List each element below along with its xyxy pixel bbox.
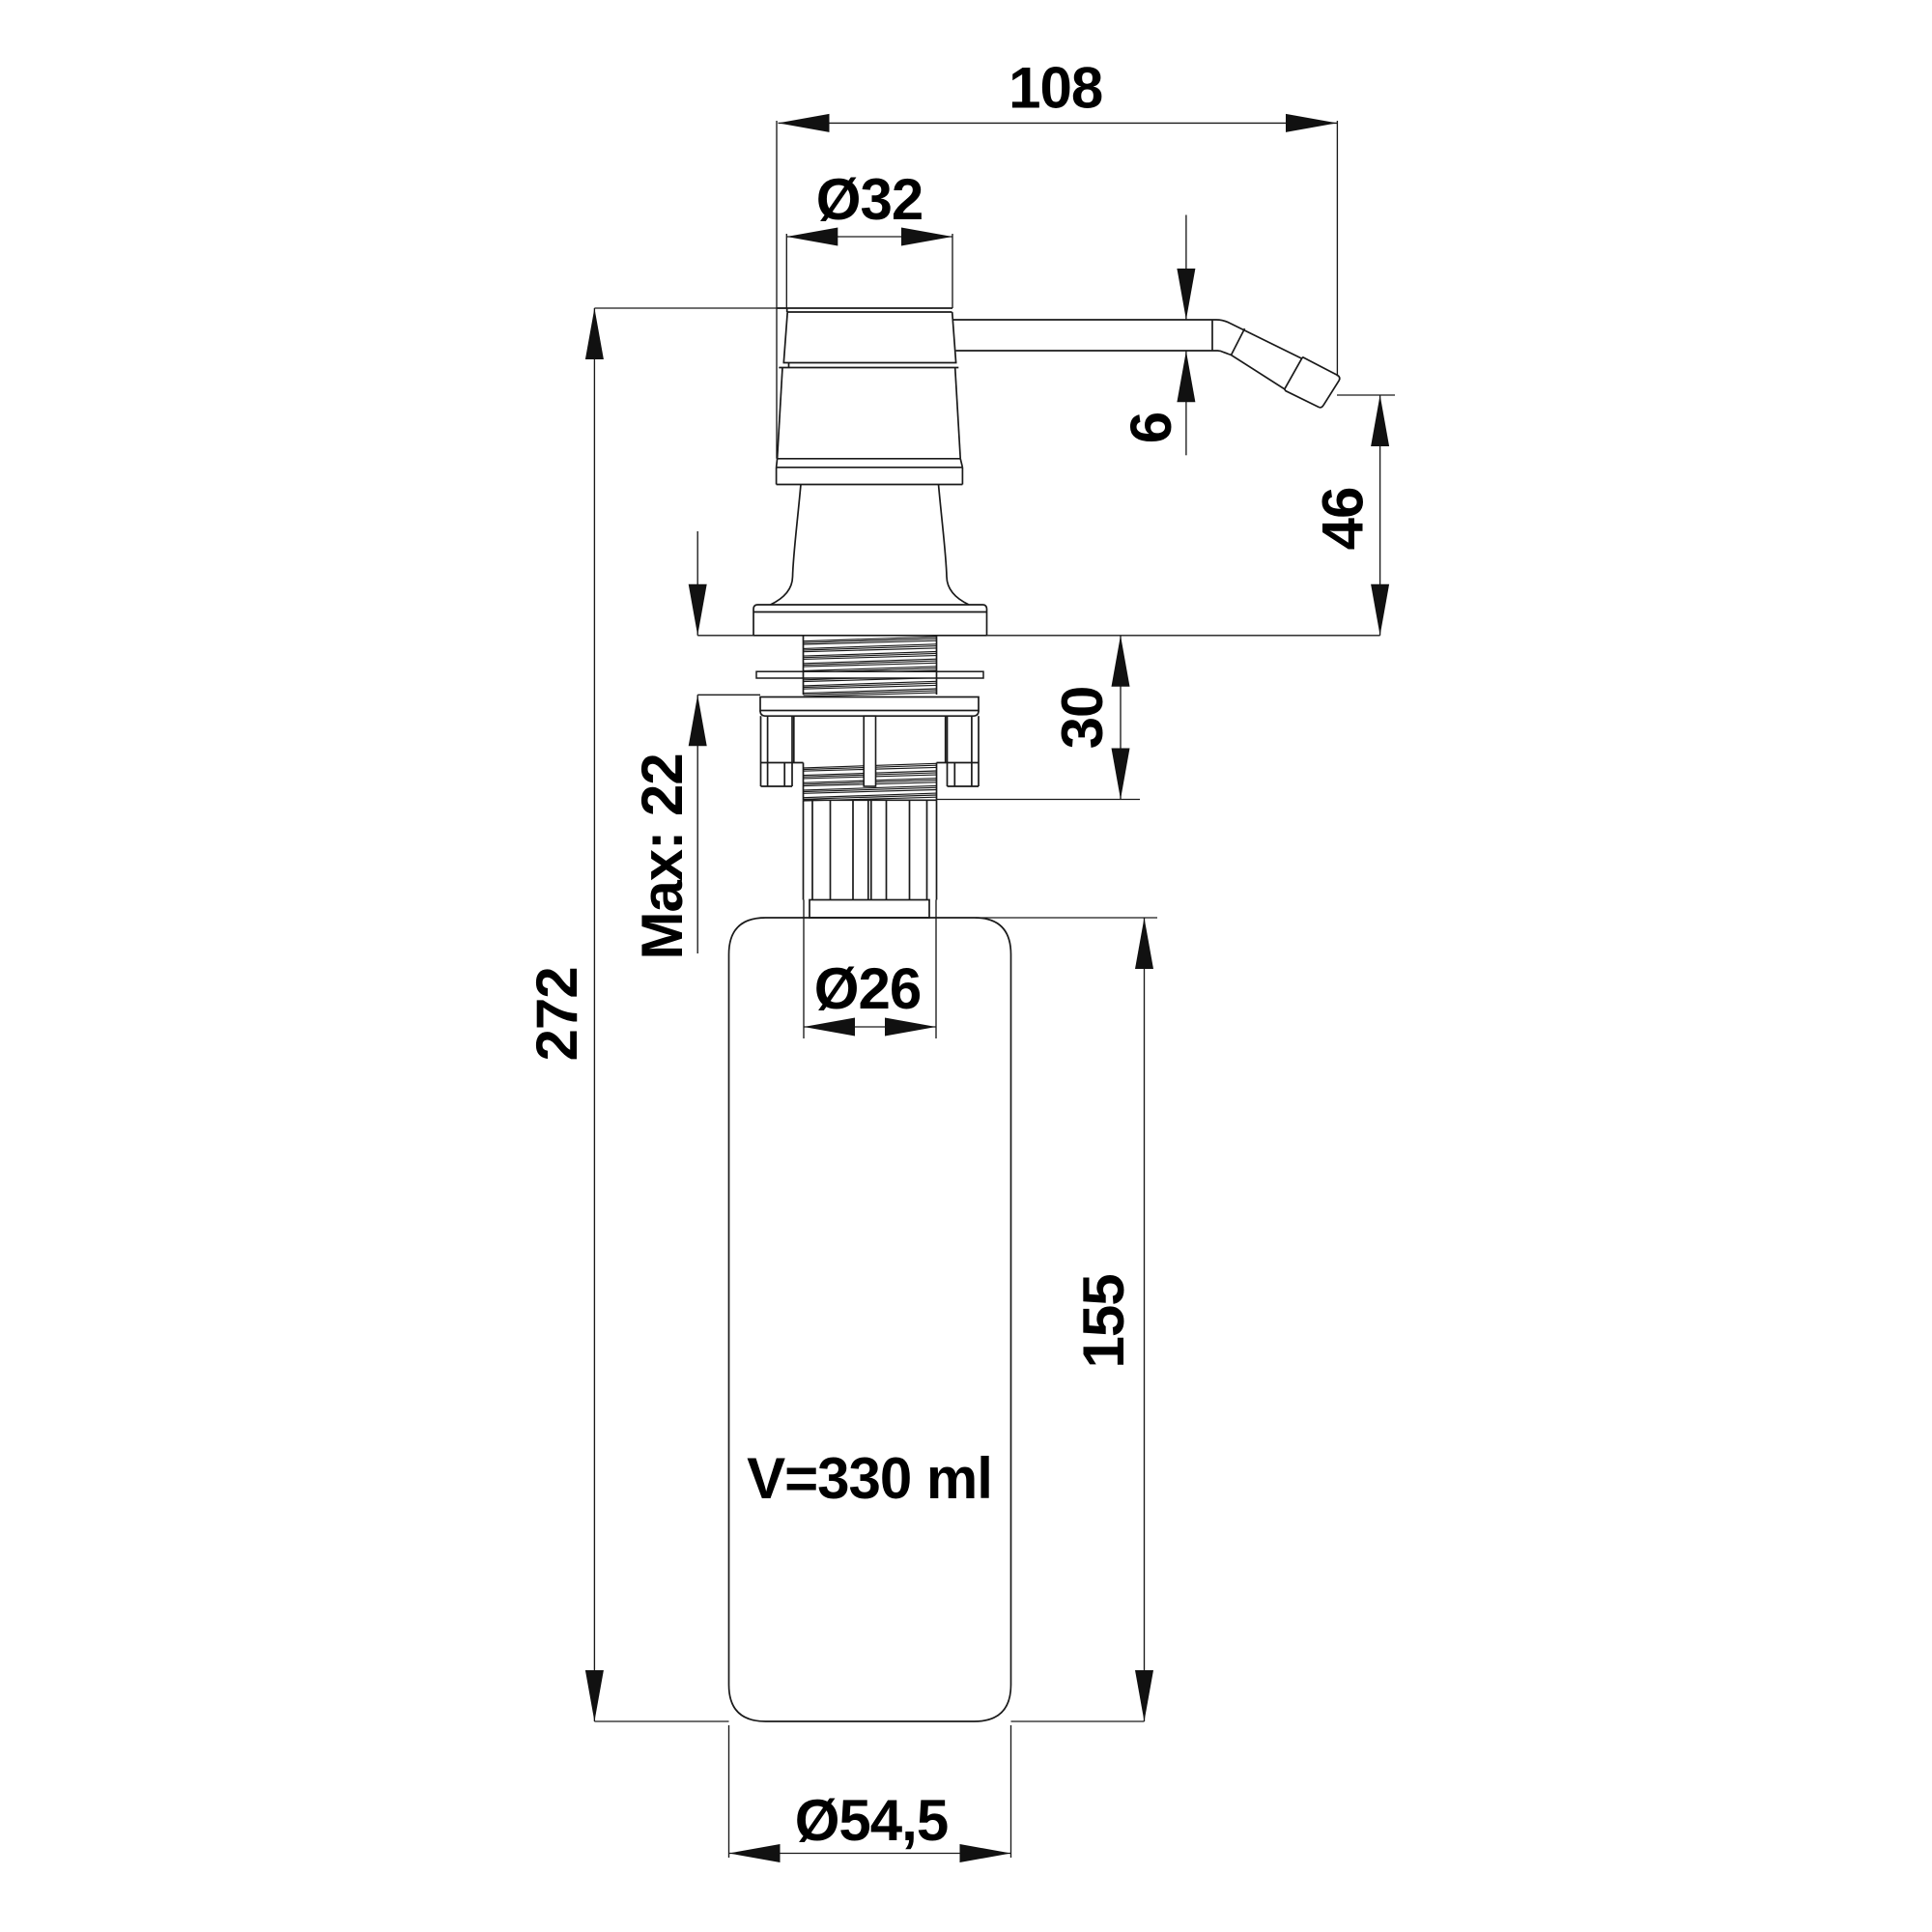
svg-text:108: 108	[1009, 56, 1102, 121]
svg-text:6: 6	[1119, 412, 1183, 443]
svg-text:V=330 ml: V=330 ml	[747, 1446, 992, 1511]
svg-text:Ø32: Ø32	[816, 167, 923, 232]
svg-text:155: 155	[1071, 1274, 1136, 1368]
svg-text:Max: 22: Max: 22	[630, 753, 695, 959]
svg-text:Ø54,5: Ø54,5	[795, 1788, 948, 1853]
svg-text:Ø26: Ø26	[814, 956, 921, 1021]
svg-text:46: 46	[1311, 488, 1376, 551]
svg-text:272: 272	[525, 967, 589, 1061]
svg-text:30: 30	[1050, 687, 1115, 750]
